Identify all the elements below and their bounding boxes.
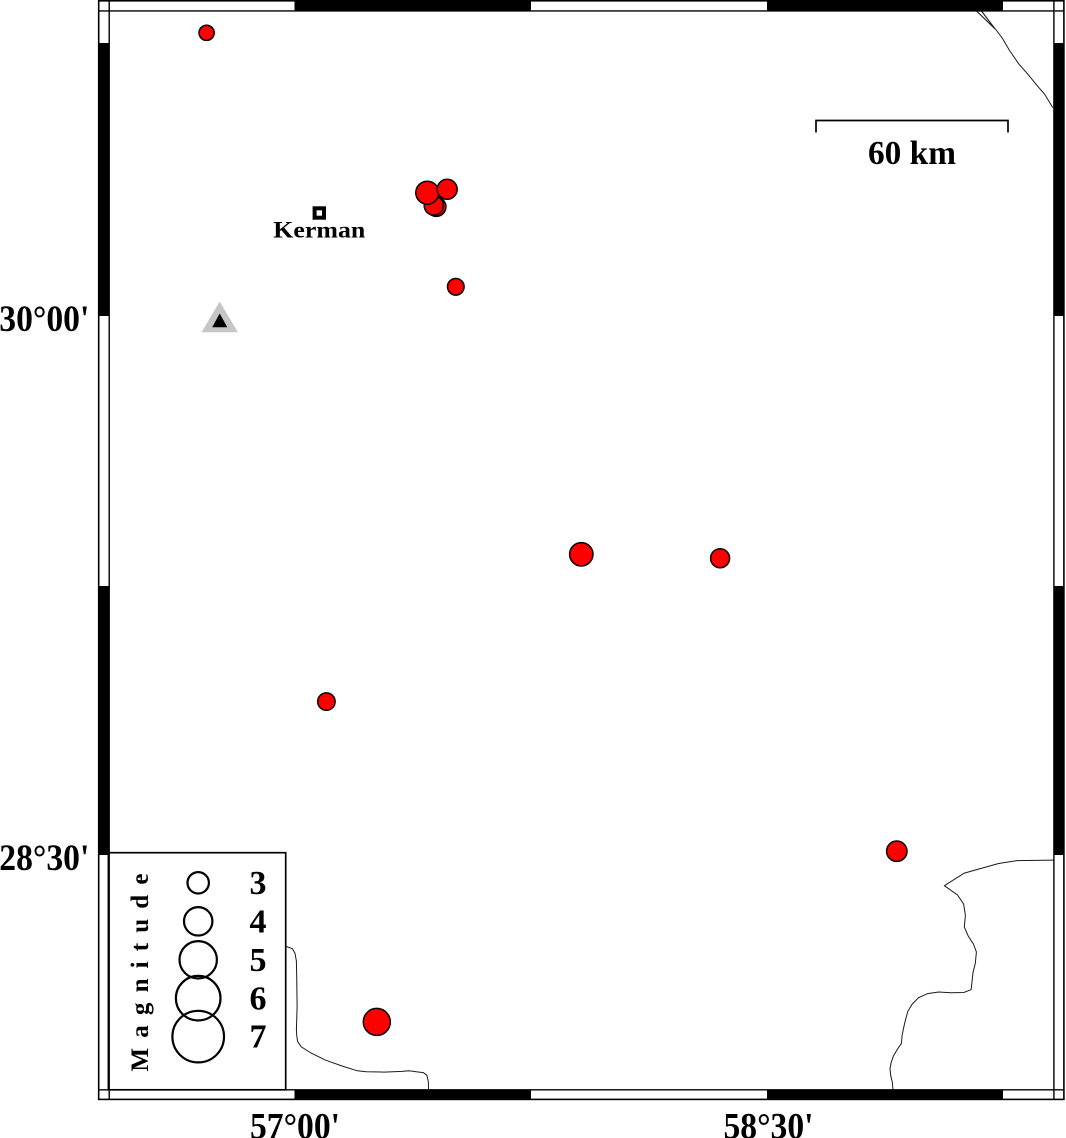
svg-text:Kerman: Kerman [273,218,365,243]
svg-text:7: 7 [250,1019,267,1056]
svg-text:58°30': 58°30' [724,1106,814,1138]
svg-text:30°00': 30°00' [0,299,89,340]
svg-text:6: 6 [250,980,267,1017]
svg-text:60 km: 60 km [868,135,956,172]
svg-text:57°00': 57°00' [250,1106,340,1138]
svg-text:5: 5 [250,942,267,979]
svg-text:4: 4 [250,903,267,940]
svg-text:28°30': 28°30' [0,838,89,879]
svg-text:3: 3 [250,865,267,902]
